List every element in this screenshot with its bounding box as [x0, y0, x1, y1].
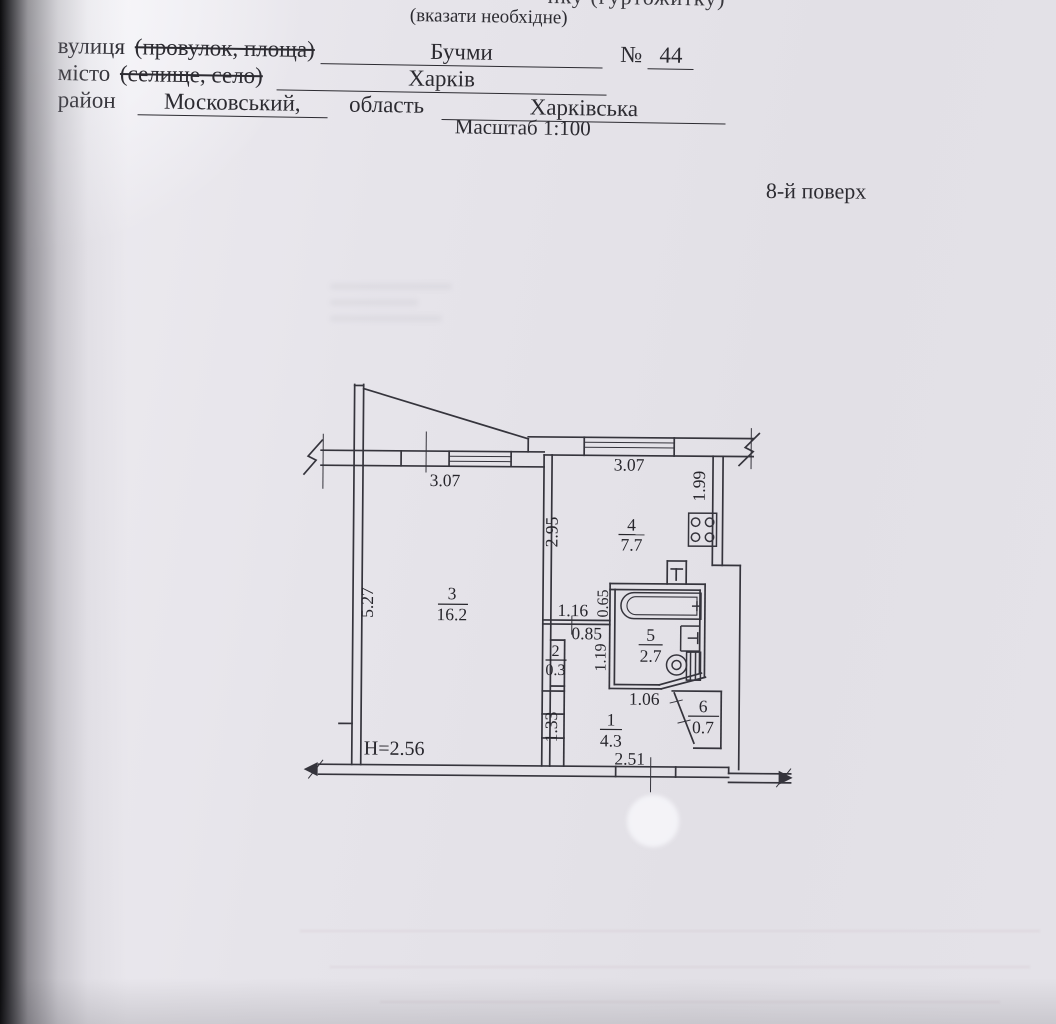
ceiling-height-note: Н=2.56 [364, 738, 425, 760]
dim-window-left: 3.07 [430, 470, 461, 490]
room6-area: 0.7 [692, 717, 714, 737]
dim-0-65: 0.65 [595, 589, 612, 617]
dim-1-99: 1.99 [689, 471, 709, 502]
room3-number: 3 [448, 583, 457, 603]
vent-shaft-icon [667, 561, 686, 584]
room4-number: 4 [627, 515, 636, 535]
floor-plan: 3.07 3.07 1.99 2.95 5.27 1.16 0.65 0.85 … [0, 0, 1056, 1024]
room2-area: 0.3 [545, 662, 565, 679]
scanned-page: нку (гуртожитку) (вказати необхідне) вул… [0, 0, 1056, 1024]
room6-number: 6 [699, 696, 708, 716]
window-right [528, 437, 753, 457]
plan-labels: 3.07 3.07 1.99 2.95 5.27 1.16 0.65 0.85 … [356, 452, 717, 769]
dim-2-51: 2.51 [614, 749, 645, 769]
dim-0-85: 0.85 [571, 623, 602, 643]
room1-number: 1 [607, 709, 616, 729]
room5-area: 2.7 [640, 646, 662, 666]
break-symbol-left [304, 440, 322, 474]
dim-1-16: 1.16 [558, 600, 589, 620]
sink-icon [681, 626, 700, 651]
room1-area: 4.3 [600, 730, 622, 750]
balcony-diagonal [363, 389, 528, 439]
dim-1-19: 1.19 [592, 643, 609, 671]
room4-area: 7.7 [620, 535, 642, 555]
dim-1-06: 1.06 [629, 689, 660, 709]
dim-window-right: 3.07 [614, 454, 645, 474]
dim-1-33: 1.33 [541, 711, 561, 742]
toilet-icon [666, 652, 700, 680]
room2-number: 2 [552, 643, 560, 660]
room3-area: 16.2 [436, 604, 467, 624]
dim-5-27: 5.27 [357, 587, 377, 618]
room5-number: 5 [646, 625, 655, 645]
bathtub-icon [621, 593, 701, 620]
bathroom-walls [609, 583, 706, 689]
dim-2-95: 2.95 [541, 516, 561, 547]
